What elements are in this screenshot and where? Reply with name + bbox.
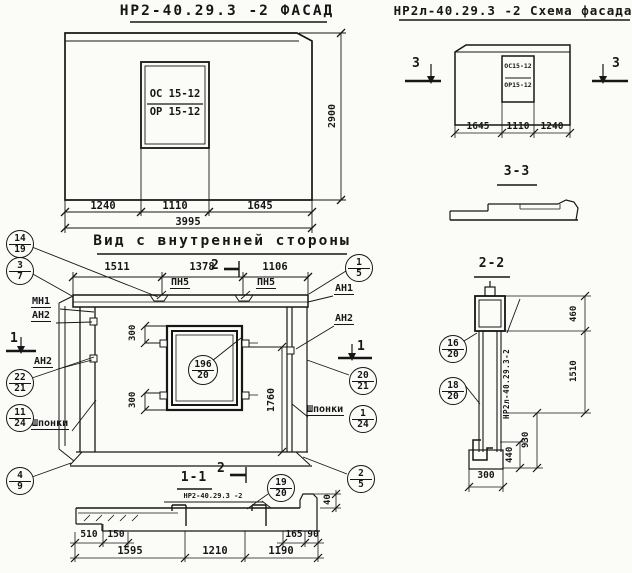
inner-dim-1106: 1106 [262,261,287,273]
drawing-linework [0,0,632,573]
callout-3-7: 3 7 [6,257,34,285]
callout-bottom: 21 [357,382,368,392]
s11-dim-90: 90 [307,529,318,540]
schema-section-marker-right: 3 [612,56,620,71]
facade-dim-1110: 1110 [162,200,187,212]
blueprint-sheet: НР2-40.29.3 -2 ФАСАД ОС 15-12 ОР 15-12 1… [0,0,632,573]
section-2-2-title: 2-2 [479,256,505,271]
facade-dim-1240: 1240 [90,200,115,212]
callout-top: 18 [442,381,463,392]
callout-top: 19 [270,478,291,489]
callout-bottom: 5 [356,269,362,279]
schema-dim-1645: 1645 [467,121,490,132]
facade-dim-total: 3995 [175,216,200,228]
s22-dim-440: 440 [505,442,517,468]
callout-18-20: 18 20 [439,377,467,405]
callout-top: 4 [9,471,30,482]
label-an2-left: АН2 [33,356,53,368]
callout-bottom: 20 [447,350,458,360]
callout-1-5: 1 5 [345,254,373,282]
callout-top: 196 [192,360,215,371]
schema-window-mark-top: ОС15-12 [504,62,531,70]
label-an2-right: АН2 [334,313,354,325]
facade-dim-1645: 1645 [247,200,272,212]
inner-dim-1511: 1511 [104,261,129,273]
s11-dim-1210: 1210 [202,545,227,557]
s11-dim-150: 150 [107,529,124,540]
callout-top: 16 [442,339,463,350]
callout-11-24: 11 24 [6,404,34,432]
inner-dim-300-top: 300 [128,321,140,345]
label-mn1: МН1 [31,296,51,308]
callout-bottom: 9 [17,482,23,492]
callout-16-20: 16 20 [439,335,467,363]
callout-bottom: 21 [14,384,25,394]
callout-top: 2 [350,469,371,480]
s11-dim-165: 165 [285,529,302,540]
schema-section-marker-left: 3 [412,56,420,71]
callout-2-5: 2 5 [347,465,375,493]
inner-section-markers [6,261,372,361]
callout-bottom: 20 [197,371,208,381]
schema-outline [399,20,630,125]
label-pn5-right: ПН5 [256,277,276,289]
section-1-1-title: 1-1 [181,470,207,485]
s11-dim-40: 40 [323,491,335,509]
section-3-3-profile [450,185,578,220]
callout-1-24: 1 24 [349,405,377,433]
callout-bottom: 20 [275,489,286,499]
inner-dim-300-bottom: 300 [128,388,140,412]
s11-dim-1190: 1190 [268,545,293,557]
callout-top: 14 [9,234,30,245]
s22-dim-1510: 1510 [569,342,581,400]
section-2-2-panel-mark: НР2л-40.29.3-2 [502,334,514,434]
schema-dim-1240: 1240 [541,121,564,132]
s11-dim-510: 510 [80,529,97,540]
section-3-3-title: 3-3 [504,164,530,179]
section-1-marker-right: 1 [357,339,365,354]
label-pn5-left: ПН5 [170,277,190,289]
callout-bottom: 7 [17,272,23,282]
s22-dim-460: 460 [569,300,581,328]
schema-dim-1110: 1110 [507,121,530,132]
schema-window-mark-bottom: ОР15-12 [504,81,531,89]
callout-top: 3 [9,261,30,272]
s22-dim-300: 300 [477,470,494,481]
section-1-marker-left: 1 [10,331,18,346]
callout-window-196-20: 196 20 [188,355,218,385]
callout-top: 11 [9,408,30,419]
callout-bottom: 24 [14,419,25,429]
inner-view-title: Вид с внутренней стороны [93,233,351,249]
callout-top: 22 [9,373,30,384]
label-shponki-right: Шпонки [306,404,344,416]
label-an2-left-top: АН2 [31,310,51,322]
callout-top: 1 [352,409,373,420]
callout-22-21: 22 21 [6,369,34,397]
callout-14-19: 14 19 [6,230,34,258]
callout-bottom: 24 [357,420,368,430]
s11-dim-1595: 1595 [117,545,142,557]
callout-top: 20 [352,371,373,382]
label-an1: АН1 [334,283,354,295]
callout-bottom: 5 [358,480,364,490]
label-shponki-left: Шпонки [31,418,69,430]
callout-bottom: 19 [14,245,25,255]
s22-dim-930: 930 [521,415,533,465]
callout-19-20: 19 20 [267,474,295,502]
section-2-cut-marker-bottom: 2 [217,461,225,476]
facade-dim-height: 2900 [327,92,339,140]
callout-bottom: 20 [447,392,458,402]
facade-title: НР2-40.29.3 -2 ФАСАД [120,3,335,19]
callout-top: 1 [348,258,369,269]
inner-dim-1760: 1760 [266,377,278,423]
callout-4-9: 4 9 [6,467,34,495]
facade-window-mark-top: ОС 15-12 [150,88,201,100]
section-1-1-panel-mark: НР2-40.29.3 -2 [183,492,242,500]
section-2-cut-marker-top: 2 [211,258,219,273]
schema-title: НР2л-40.29.3 -2 Схема фасада [394,3,632,18]
facade-window-mark-bottom: ОР 15-12 [150,106,201,118]
schema-dimensions [451,102,574,138]
callout-20-21: 20 21 [349,367,377,395]
